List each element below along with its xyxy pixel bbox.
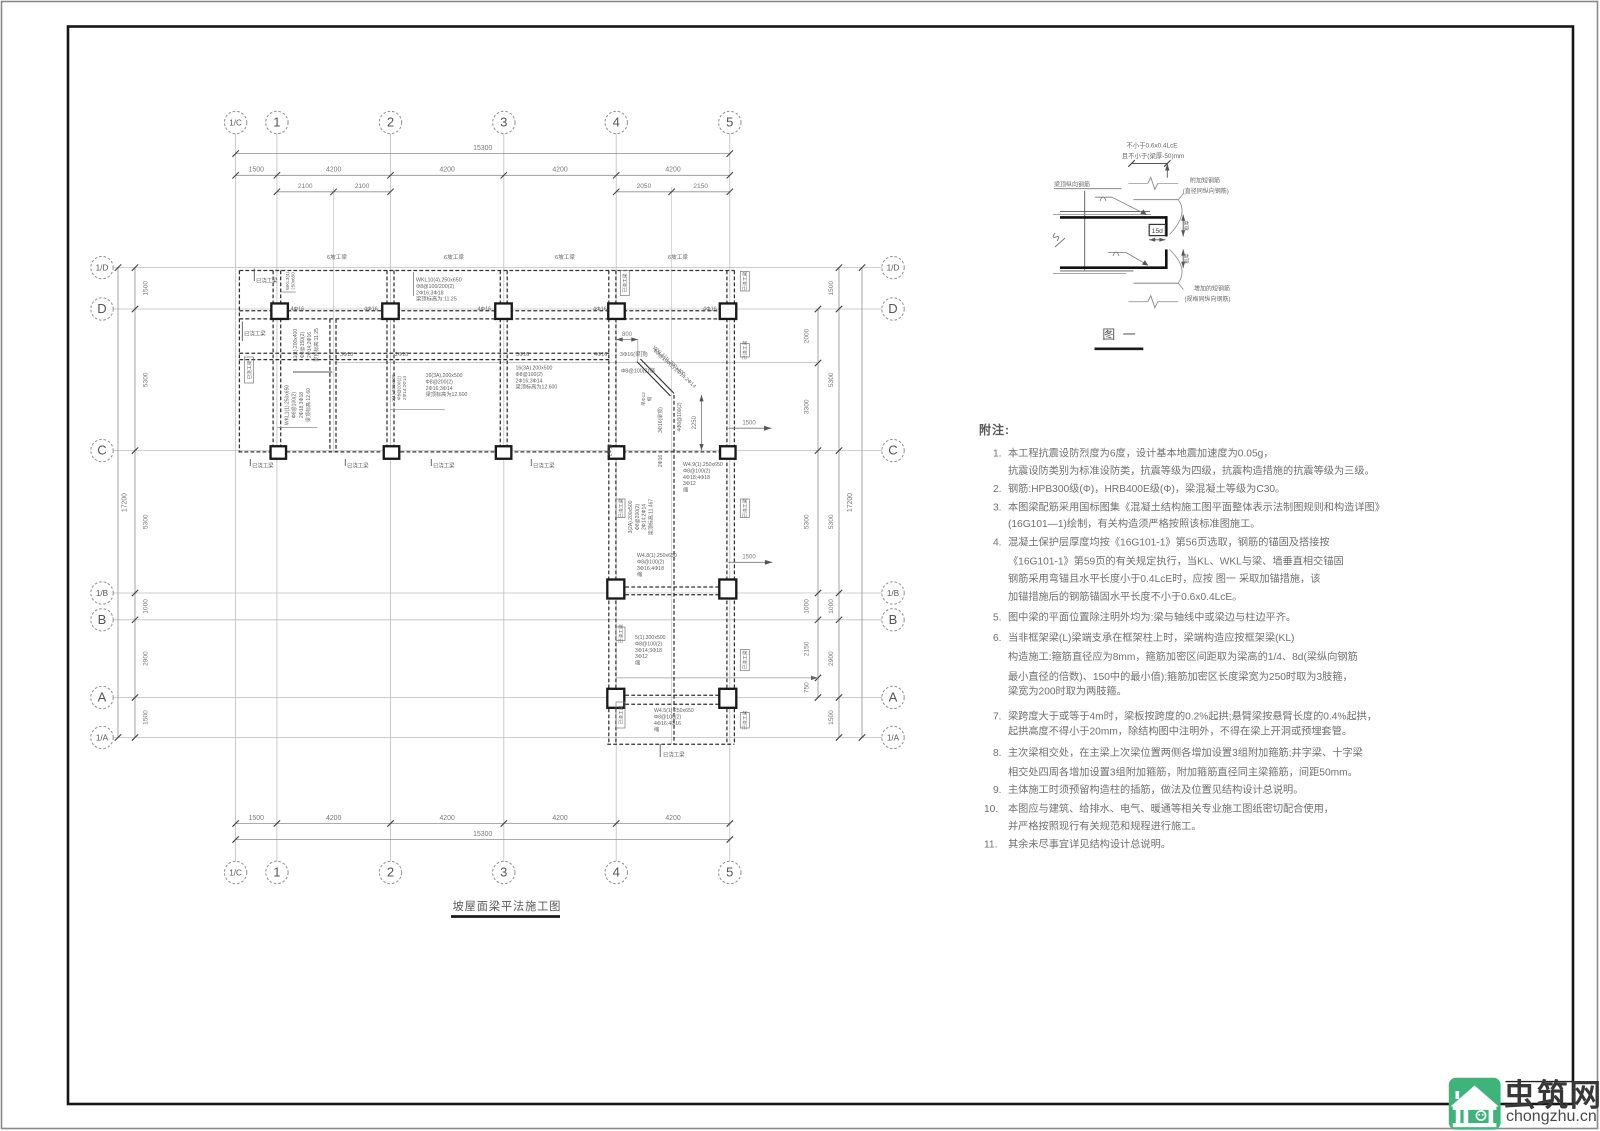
svg-text:6坡工梁: 6坡工梁	[668, 253, 688, 261]
svg-text:4: 4	[613, 115, 620, 130]
svg-text:2Φ14;2Φ14: 2Φ14;2Φ14	[642, 504, 648, 530]
svg-text:5300: 5300	[828, 372, 835, 387]
svg-text:Φ8@100(2): Φ8@100(2)	[683, 468, 711, 474]
svg-text:缩: 缩	[683, 486, 688, 494]
svg-text:4200: 4200	[665, 167, 680, 174]
svg-text:W4.8(1).250x650: W4.8(1).250x650	[637, 553, 677, 559]
svg-text:图中梁的平面位置除注明外均为:梁与轴线中或梁边与柱边平齐。: 图中梁的平面位置除注明外均为:梁与轴线中或梁边与柱边平齐。	[1008, 611, 1296, 624]
svg-text:2Φ18: 2Φ18	[395, 352, 408, 358]
svg-text:梁跨度大于或等于4m时，梁板按跨度的0.2%起拱;悬臂梁按悬: 梁跨度大于或等于4m时，梁板按跨度的0.2%起拱;悬臂梁按悬臂长度的0.4%起拱…	[1008, 710, 1377, 723]
svg-text:1500: 1500	[828, 281, 835, 296]
svg-text:C: C	[97, 443, 106, 458]
svg-text:4Φ16: 4Φ16	[478, 306, 492, 312]
svg-text:梁顶标高为:11.25: 梁顶标高为:11.25	[416, 295, 457, 303]
svg-text:10.: 10.	[984, 804, 998, 815]
svg-text:已浇工梁: 已浇工梁	[433, 462, 455, 470]
svg-text:(16G101—1)绘制，有关构造须严格按照该标准图施工。: (16G101—1)绘制，有关构造须严格按照该标准图施工。	[1008, 517, 1260, 530]
svg-text:混凝土保护层厚度均按《16G101-1》第56页选取，钢筋的: 混凝土保护层厚度均按《16G101-1》第56页选取，钢筋的锚固及搭接按	[1008, 536, 1330, 549]
svg-text:2050: 2050	[637, 183, 652, 190]
svg-text:2: 2	[387, 865, 394, 880]
svg-text:构造施工:箍筋直径应为8mm，箍筋加密区间距取为梁高的1/4: 构造施工:箍筋直径应为8mm，箍筋加密区间距取为梁高的1/4、8d(梁纵向钢筋	[1008, 650, 1358, 663]
svg-text:本图应与建筑、给排水、电气、暖通等相关专业施工图纸密切配合使: 本图应与建筑、给排水、电气、暖通等相关专业施工图纸密切配合使用，	[1008, 802, 1334, 815]
svg-text:WKL1(1).250x650: WKL1(1).250x650	[285, 385, 291, 426]
svg-text:最小直径的倍数)、150中的最小值);箍筋加密区长度梁宽为2: 最小直径的倍数)、150中的最小值);箍筋加密区长度梁宽为250时取为3肢箍，	[1008, 670, 1353, 683]
svg-text:2100: 2100	[355, 183, 370, 190]
svg-text:W4.5(1).250x650: W4.5(1).250x650	[654, 708, 694, 714]
svg-text:3(2A).200x500: 3(2A).200x500	[628, 500, 634, 533]
svg-text:起拱高度不得小于20mm，除结构图中注明外，不得在梁上开洞或: 起拱高度不得小于20mm，除结构图中注明外，不得在梁上开洞或预埋套管。	[1008, 725, 1352, 738]
svg-text:9.: 9.	[993, 785, 1002, 796]
svg-text:1000: 1000	[143, 599, 150, 614]
svg-text:不小于0.6x0.4LcE: 不小于0.6x0.4LcE	[1126, 141, 1177, 150]
svg-text:1.: 1.	[993, 449, 1002, 460]
svg-text:6坡工梁: 6坡工梁	[444, 253, 464, 261]
svg-text:WKL10(4).250x650: WKL10(4).250x650	[416, 278, 462, 284]
svg-text:4200: 4200	[665, 815, 680, 822]
svg-text:17200: 17200	[122, 493, 129, 512]
svg-text:17200: 17200	[847, 493, 854, 512]
svg-text:主次梁相交处，在主梁上次梁位置两侧各增加设置3组附加箍筋;井: 主次梁相交处，在主梁上次梁位置两侧各增加设置3组附加箍筋;井字梁、十字梁	[1008, 746, 1363, 759]
svg-text:D: D	[97, 301, 106, 316]
svg-text:梁顶标高:12.60: 梁顶标高:12.60	[305, 388, 312, 422]
svg-text:已浇工梁: 已浇工梁	[617, 705, 624, 724]
svg-text:6坡工梁: 6坡工梁	[327, 253, 347, 261]
svg-text:1/A: 1/A	[96, 734, 109, 743]
svg-text:缩: 缩	[646, 396, 653, 401]
svg-text:5: 5	[726, 115, 733, 130]
svg-text:已浇工梁: 已浇工梁	[742, 340, 749, 359]
svg-text:附注:: 附注:	[979, 422, 1010, 437]
svg-text:板厚: 板厚	[1183, 220, 1191, 230]
svg-text:已浇工梁: 已浇工梁	[246, 360, 253, 379]
svg-text:3: 3	[500, 865, 507, 880]
svg-text:2150: 2150	[693, 183, 708, 190]
svg-text:梁顶纵向钢筋: 梁顶纵向钢筋	[1054, 181, 1090, 189]
svg-text:2900: 2900	[143, 651, 150, 666]
svg-text:2.: 2.	[993, 484, 1002, 495]
svg-text:梁宽为200时取为两肢箍。: 梁宽为200时取为两肢箍。	[1008, 685, 1127, 698]
svg-text:5300: 5300	[828, 514, 835, 529]
svg-text:2Φ16: 2Φ16	[608, 444, 614, 457]
svg-text:3Φ16;4Φ18: 3Φ16;4Φ18	[637, 566, 664, 572]
svg-text:2Φ16;3Φ14: 2Φ16;3Φ14	[516, 378, 543, 384]
svg-text:图 一: 图 一	[1102, 327, 1138, 342]
svg-text:5300: 5300	[804, 514, 811, 529]
svg-text:800: 800	[622, 332, 633, 338]
svg-text:2250: 2250	[692, 415, 698, 429]
svg-text:B: B	[98, 612, 107, 627]
svg-text:chongzhu.cn: chongzhu.cn	[1506, 1108, 1597, 1125]
svg-text:1000: 1000	[828, 599, 835, 614]
svg-text:16(3A).200x500: 16(3A).200x500	[516, 366, 553, 372]
svg-text:4Φ16: 4Φ16	[364, 306, 378, 312]
svg-text:本工程抗震设防烈度为6度，设计基本地震加速度为0.05g，: 本工程抗震设防烈度为6度，设计基本地震加速度为0.05g，	[1008, 447, 1273, 460]
svg-text:加锚措施后的钢筋锚固水平长度不小于0.6x0.4LcE。: 加锚措施后的钢筋锚固水平长度不小于0.6x0.4LcE。	[1008, 590, 1242, 603]
svg-text:板厚: 板厚	[1183, 253, 1191, 263]
svg-text:4Φ18;4Φ18: 4Φ18;4Φ18	[683, 475, 710, 481]
svg-text:1: 1	[273, 115, 280, 130]
svg-text:15300: 15300	[473, 145, 492, 152]
svg-text:1/A: 1/A	[887, 734, 900, 743]
svg-text:梁顶标高为12.600: 梁顶标高为12.600	[516, 383, 558, 391]
svg-text:D: D	[888, 301, 897, 316]
svg-text:Φ8@100/200(2): Φ8@100/200(2)	[416, 284, 454, 290]
svg-text:Φ8@100(2): Φ8@100(2)	[292, 392, 298, 419]
svg-text:钢筋:HPB300级(Φ)，HRB400E级(Φ)，梁混凝土: 钢筋:HPB300级(Φ)，HRB400E级(Φ)，梁混凝土等级为C30。	[1008, 482, 1285, 495]
svg-text:3Φ16: 3Φ16	[516, 352, 529, 358]
svg-text:主体施工时须预留构造柱的插筋，做法及位置见结构设计总说明。: 主体施工时须预留构造柱的插筋，做法及位置见结构设计总说明。	[1008, 783, 1303, 796]
svg-text:750: 750	[804, 682, 811, 693]
svg-text:16(3A).200x500: 16(3A).200x500	[426, 373, 463, 379]
svg-text:已浇工梁: 已浇工梁	[742, 498, 749, 517]
svg-text:缩: 缩	[654, 725, 659, 733]
svg-text:3Φ12: 3Φ12	[635, 654, 648, 660]
svg-text:1500: 1500	[249, 815, 264, 822]
svg-text:相交处四周各增加设置3组附加箍筋，附加箍筋直径同主梁箍筋，间: 相交处四周各增加设置3组附加箍筋，附加箍筋直径同主梁箍筋，间距50mm。	[1008, 766, 1358, 779]
svg-text:4200: 4200	[552, 167, 567, 174]
svg-text:4Φ16: 4Φ16	[703, 306, 717, 312]
svg-text:2000: 2000	[804, 328, 811, 343]
svg-text:5300: 5300	[143, 514, 150, 529]
svg-text:A: A	[889, 690, 898, 705]
svg-text:(规格同纵向钢筋): (规格同纵向钢筋)	[1185, 295, 1231, 303]
svg-text:2Φ18;3Φ18: 2Φ18;3Φ18	[299, 392, 305, 418]
svg-text:抗震设防类别为标准设防类，抗震等级为四级，抗震构造措施的抗震: 抗震设防类别为标准设防类，抗震等级为四级，抗震构造措施的抗震等级为三级。	[1008, 464, 1375, 477]
svg-text:3.: 3.	[993, 503, 1002, 514]
svg-text:已浇工梁: 已浇工梁	[617, 624, 624, 643]
svg-text:1500: 1500	[249, 167, 264, 174]
svg-text:2: 2	[387, 115, 394, 130]
svg-text:1000: 1000	[804, 599, 811, 614]
svg-text:3Φ16(梁顶): 3Φ16(梁顶)	[657, 407, 664, 433]
svg-text:4Φ16;4Φ16: 4Φ16;4Φ16	[654, 721, 681, 727]
svg-text:1/D: 1/D	[96, 264, 109, 273]
svg-text:1: 1	[273, 865, 280, 880]
svg-text:1/B: 1/B	[887, 589, 900, 598]
svg-text:Φ8@200(2): Φ8@200(2)	[397, 375, 402, 400]
svg-text:5: 5	[726, 865, 733, 880]
svg-text:5300: 5300	[143, 372, 150, 387]
svg-text:4200: 4200	[326, 167, 341, 174]
svg-text:4200: 4200	[439, 167, 454, 174]
svg-text:15d: 15d	[1152, 228, 1163, 235]
svg-text:且不小于(梁厚-50)mm: 且不小于(梁厚-50)mm	[1122, 151, 1184, 160]
svg-text:Φ8@150(2): Φ8@150(2)	[300, 332, 306, 359]
svg-text:4Φ8@100(2): 4Φ8@100(2)	[677, 402, 683, 431]
svg-text:已浇工梁: 已浇工梁	[663, 751, 685, 759]
svg-text:附加短钢筋: 附加短钢筋	[1190, 176, 1220, 184]
svg-text:2Φ14;2Φ16: 2Φ14;2Φ16	[307, 332, 313, 358]
svg-text:缩: 缩	[637, 570, 642, 578]
svg-text:梁顶标高:11.467: 梁顶标高:11.467	[647, 499, 654, 536]
svg-text:6.: 6.	[993, 633, 1002, 644]
svg-text:已浇工梁: 已浇工梁	[617, 498, 624, 517]
svg-text:已浇工梁: 已浇工梁	[347, 462, 369, 470]
svg-text:(直径同纵向钢筋): (直径同纵向钢筋)	[1183, 187, 1229, 195]
svg-text:6坡工梁: 6坡工梁	[555, 253, 575, 261]
svg-text:3Φ18: 3Φ18	[340, 352, 353, 358]
svg-text:3300: 3300	[804, 399, 811, 414]
svg-text:梁顶标高:11.25: 梁顶标高:11.25	[313, 328, 320, 362]
svg-text:B: B	[889, 612, 898, 627]
svg-text:4200: 4200	[326, 815, 341, 822]
svg-text:250x650: 250x650	[291, 272, 296, 290]
svg-text:4Φ16: 4Φ16	[291, 306, 305, 312]
svg-text:4200: 4200	[439, 815, 454, 822]
svg-text:当非框架梁(L)梁端支承在框架柱上时，梁端构造应按框架梁(K: 当非框架梁(L)梁端支承在框架柱上时，梁端构造应按框架梁(KL)	[1008, 631, 1294, 644]
svg-text:1/B: 1/B	[96, 589, 109, 598]
svg-text:4: 4	[613, 865, 620, 880]
svg-text:C: C	[888, 443, 897, 458]
svg-text:已浇工梁: 已浇工梁	[533, 462, 555, 470]
svg-text:1500: 1500	[828, 710, 835, 725]
svg-text:1/C: 1/C	[229, 869, 242, 878]
svg-text:15300: 15300	[473, 831, 492, 838]
svg-text:5.: 5.	[993, 613, 1002, 624]
svg-text:其余未尽事宜详见结构设计总说明。: 其余未尽事宜详见结构设计总说明。	[1008, 838, 1171, 851]
svg-text:已浇工梁: 已浇工梁	[244, 330, 266, 338]
svg-text:吊Φ12: 吊Φ12	[641, 392, 647, 406]
svg-text:坡屋面梁平法施工图: 坡屋面梁平法施工图	[453, 899, 562, 913]
svg-text:8.: 8.	[993, 748, 1002, 759]
svg-text:2Φ16;3Φ18: 2Φ16;3Φ18	[416, 290, 444, 296]
svg-text:已浇工梁: 已浇工梁	[622, 273, 629, 292]
svg-text:已浇工梁: 已浇工梁	[742, 710, 749, 729]
svg-text:1/D: 1/D	[887, 264, 900, 273]
svg-text:已浇工梁: 已浇工梁	[742, 271, 749, 290]
svg-text:1500: 1500	[143, 281, 150, 296]
svg-text:并严格按照现行有关规范和规程进行施工。: 并严格按照现行有关规范和规程进行施工。	[1008, 820, 1202, 833]
svg-text:1500: 1500	[143, 710, 150, 725]
svg-text:Φ8@100(2)缩: Φ8@100(2)缩	[621, 367, 655, 375]
svg-text:1500: 1500	[742, 421, 756, 427]
svg-text:2900: 2900	[828, 651, 835, 666]
svg-text:4.: 4.	[993, 538, 1002, 549]
svg-text:2Φ16;3Φ14: 2Φ16;3Φ14	[426, 386, 453, 392]
svg-text:4200: 4200	[552, 815, 567, 822]
svg-text:Φ8@200(2): Φ8@200(2)	[426, 379, 454, 385]
svg-text:本图梁配筋采用国标图集《混凝土结构施工图平面整体表示法制图规: 本图梁配筋采用国标图集《混凝土结构施工图平面整体表示法制图规则和构造详图》	[1008, 501, 1385, 514]
svg-text:Φ8@200(2): Φ8@200(2)	[635, 504, 641, 531]
svg-text:Φ8@100(2): Φ8@100(2)	[637, 559, 665, 565]
svg-text:4Φ16: 4Φ16	[594, 352, 607, 358]
svg-text:已浇工梁: 已浇工梁	[256, 277, 278, 285]
svg-text:已浇工梁: 已浇工梁	[252, 462, 274, 470]
svg-text:11.: 11.	[984, 840, 997, 851]
svg-text:1500: 1500	[742, 555, 756, 561]
svg-text:W4.9(1).250x650: W4.9(1).250x650	[683, 462, 723, 468]
svg-text:WKL3(4): WKL3(4)	[285, 271, 290, 290]
svg-text:钢筋采用弯锚且水平长度小于0.4LcE时，应按 图一 采取加: 钢筋采用弯锚且水平长度小于0.4LcE时，应按 图一 采取加锚措施，该	[1008, 572, 1320, 585]
svg-text:2100: 2100	[298, 183, 313, 190]
svg-text:7.: 7.	[993, 712, 1002, 723]
svg-text:Φ8@100(2): Φ8@100(2)	[635, 641, 663, 647]
svg-text:5(1).300x500: 5(1).300x500	[635, 635, 666, 641]
svg-text:3Φ14;3Φ18: 3Φ14;3Φ18	[635, 648, 662, 654]
svg-text:3Φ16(梁顶): 3Φ16(梁顶)	[620, 350, 648, 358]
svg-text:缩: 缩	[635, 659, 640, 667]
svg-text:梁顶标高为12.600: 梁顶标高为12.600	[426, 390, 468, 398]
svg-text:2(1).200x500: 2(1).200x500	[391, 374, 396, 402]
svg-text:已浇工梁: 已浇工梁	[742, 650, 749, 669]
svg-text:2Φ14;2Φ14: 2Φ14;2Φ14	[402, 376, 407, 400]
svg-text:A: A	[98, 690, 107, 705]
svg-text:L1(1).200x400: L1(1).200x400	[293, 329, 299, 361]
svg-text:3Φ12: 3Φ12	[683, 481, 696, 487]
svg-text:Φ8@100(2): Φ8@100(2)	[654, 714, 682, 720]
svg-text:2Φ16: 2Φ16	[658, 455, 664, 468]
svg-text:增加的短钢筋: 增加的短钢筋	[1194, 285, 1230, 293]
svg-text:Φ8@100(2): Φ8@100(2)	[516, 372, 544, 378]
svg-text:2150: 2150	[804, 641, 811, 656]
svg-text:3: 3	[500, 115, 507, 130]
svg-text:《16G101-1》第59页的有关规定执行，当KL、WKL与: 《16G101-1》第59页的有关规定执行，当KL、WKL与梁、墙垂直相交锚固	[1008, 555, 1344, 568]
svg-text:1/C: 1/C	[229, 119, 242, 128]
svg-text:4Φ16: 4Φ16	[593, 306, 607, 312]
